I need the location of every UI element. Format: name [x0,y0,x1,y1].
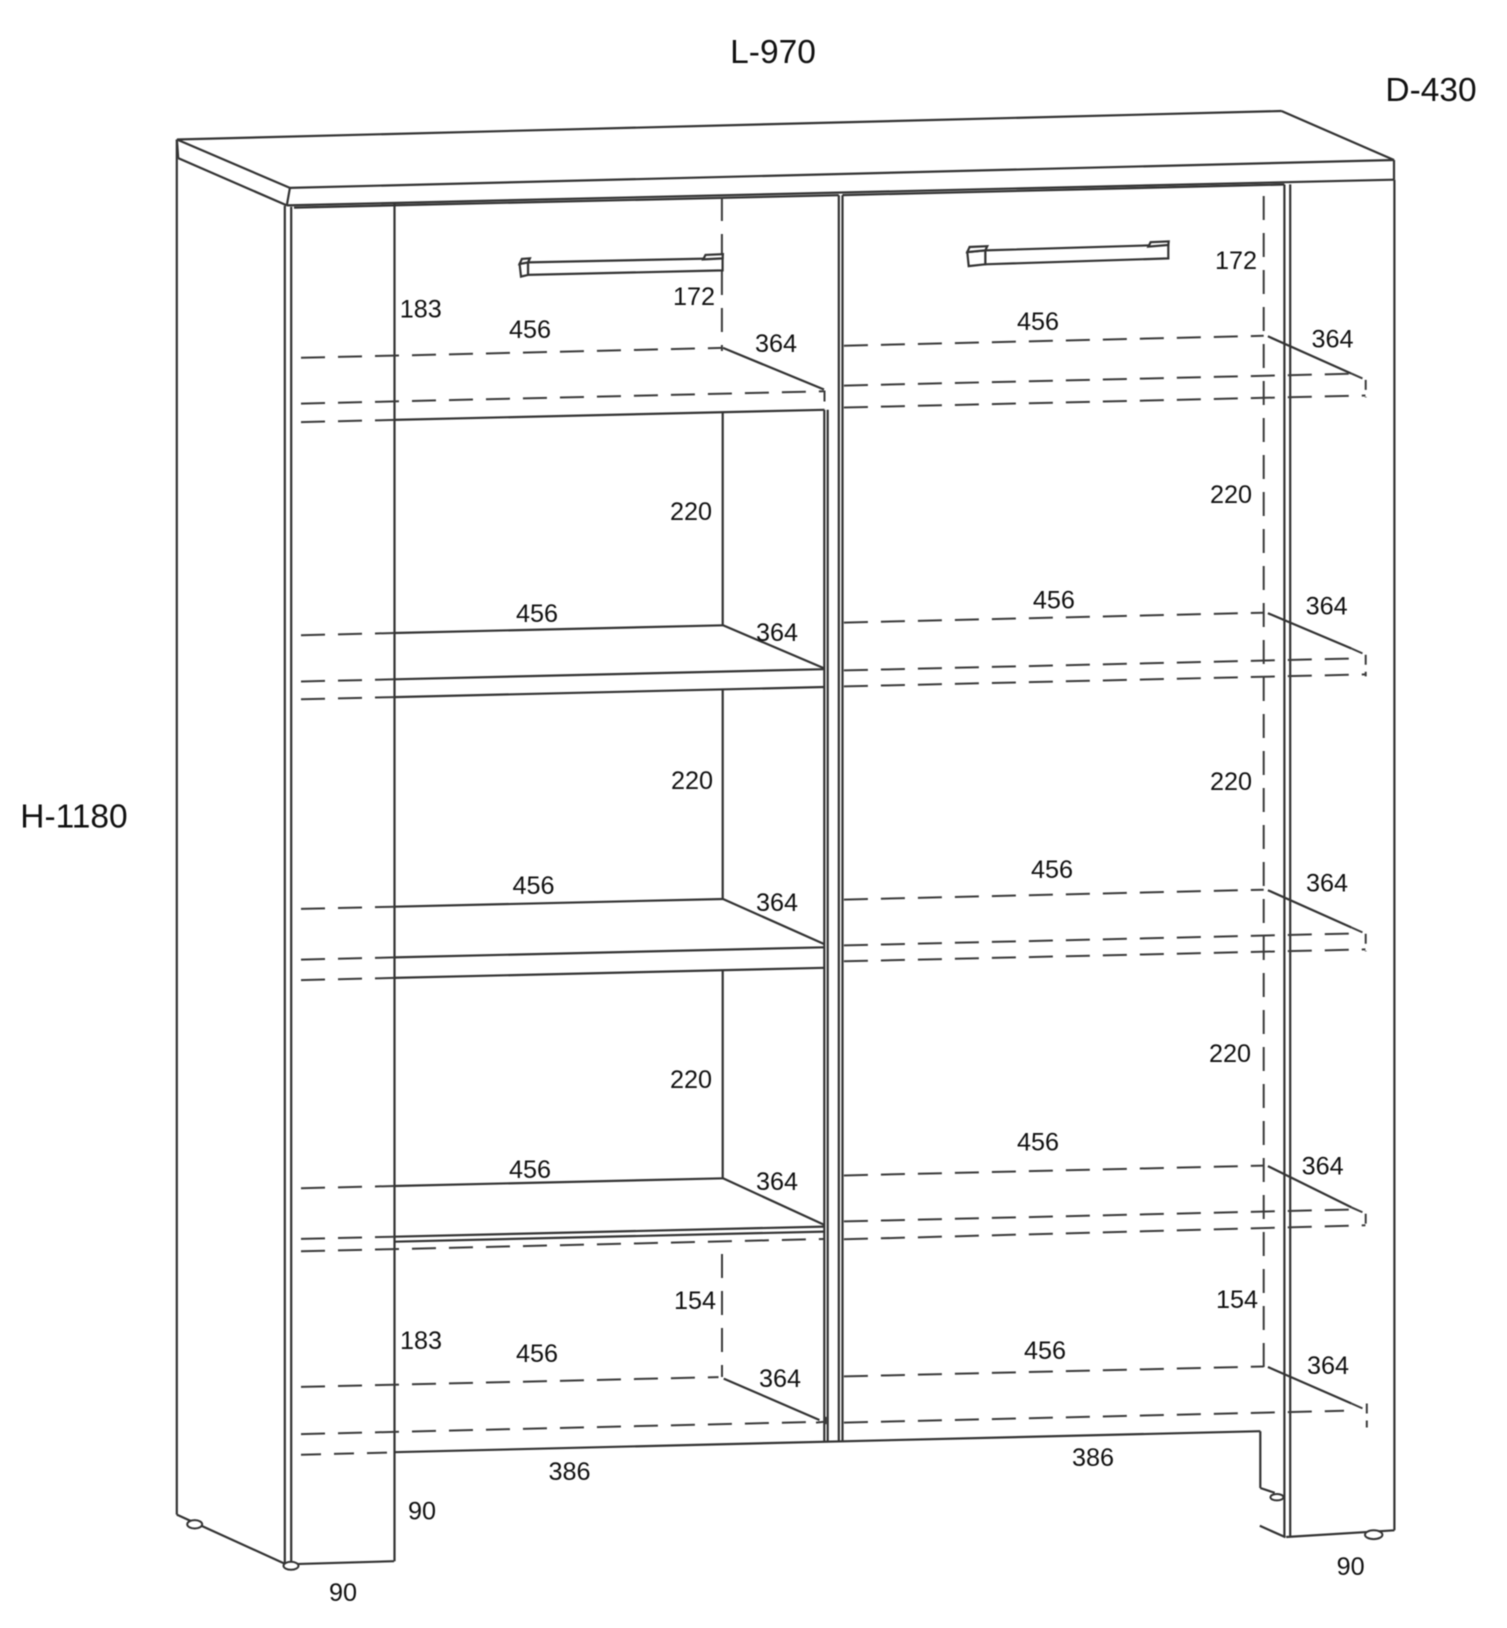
svg-text:456: 456 [1031,856,1073,884]
svg-text:386: 386 [1072,1444,1114,1472]
svg-text:456: 456 [1033,587,1075,615]
svg-text:183: 183 [400,295,442,323]
svg-text:154: 154 [674,1287,716,1315]
svg-text:172: 172 [673,283,715,311]
svg-text:364: 364 [759,1365,801,1393]
svg-text:H-1180: H-1180 [20,798,127,835]
svg-text:456: 456 [1024,1337,1066,1365]
svg-text:456: 456 [516,600,558,628]
svg-text:220: 220 [1209,1040,1251,1068]
svg-text:90: 90 [329,1579,357,1607]
svg-text:364: 364 [1311,326,1353,354]
svg-text:364: 364 [1307,1352,1349,1380]
svg-text:456: 456 [1017,1128,1059,1156]
svg-text:220: 220 [670,498,712,526]
svg-text:220: 220 [671,767,713,795]
svg-text:456: 456 [1017,308,1059,336]
svg-text:456: 456 [509,1156,551,1184]
svg-text:154: 154 [1216,1286,1258,1314]
svg-text:220: 220 [1210,768,1252,796]
svg-text:364: 364 [756,889,798,917]
svg-text:456: 456 [516,1340,558,1368]
svg-text:364: 364 [1302,1153,1344,1181]
svg-text:364: 364 [1306,870,1348,898]
svg-text:220: 220 [1210,481,1252,509]
svg-text:364: 364 [756,619,798,647]
svg-text:90: 90 [408,1498,436,1526]
svg-text:364: 364 [755,330,797,358]
svg-text:456: 456 [512,872,554,900]
svg-text:90: 90 [1337,1553,1365,1581]
svg-text:364: 364 [756,1168,798,1196]
svg-text:364: 364 [1306,593,1348,621]
svg-text:386: 386 [548,1458,590,1486]
svg-text:183: 183 [400,1327,442,1355]
svg-text:L-970: L-970 [730,34,816,71]
svg-text:D-430: D-430 [1385,72,1476,109]
svg-text:220: 220 [670,1066,712,1094]
svg-text:456: 456 [509,316,551,344]
svg-text:172: 172 [1215,247,1257,275]
